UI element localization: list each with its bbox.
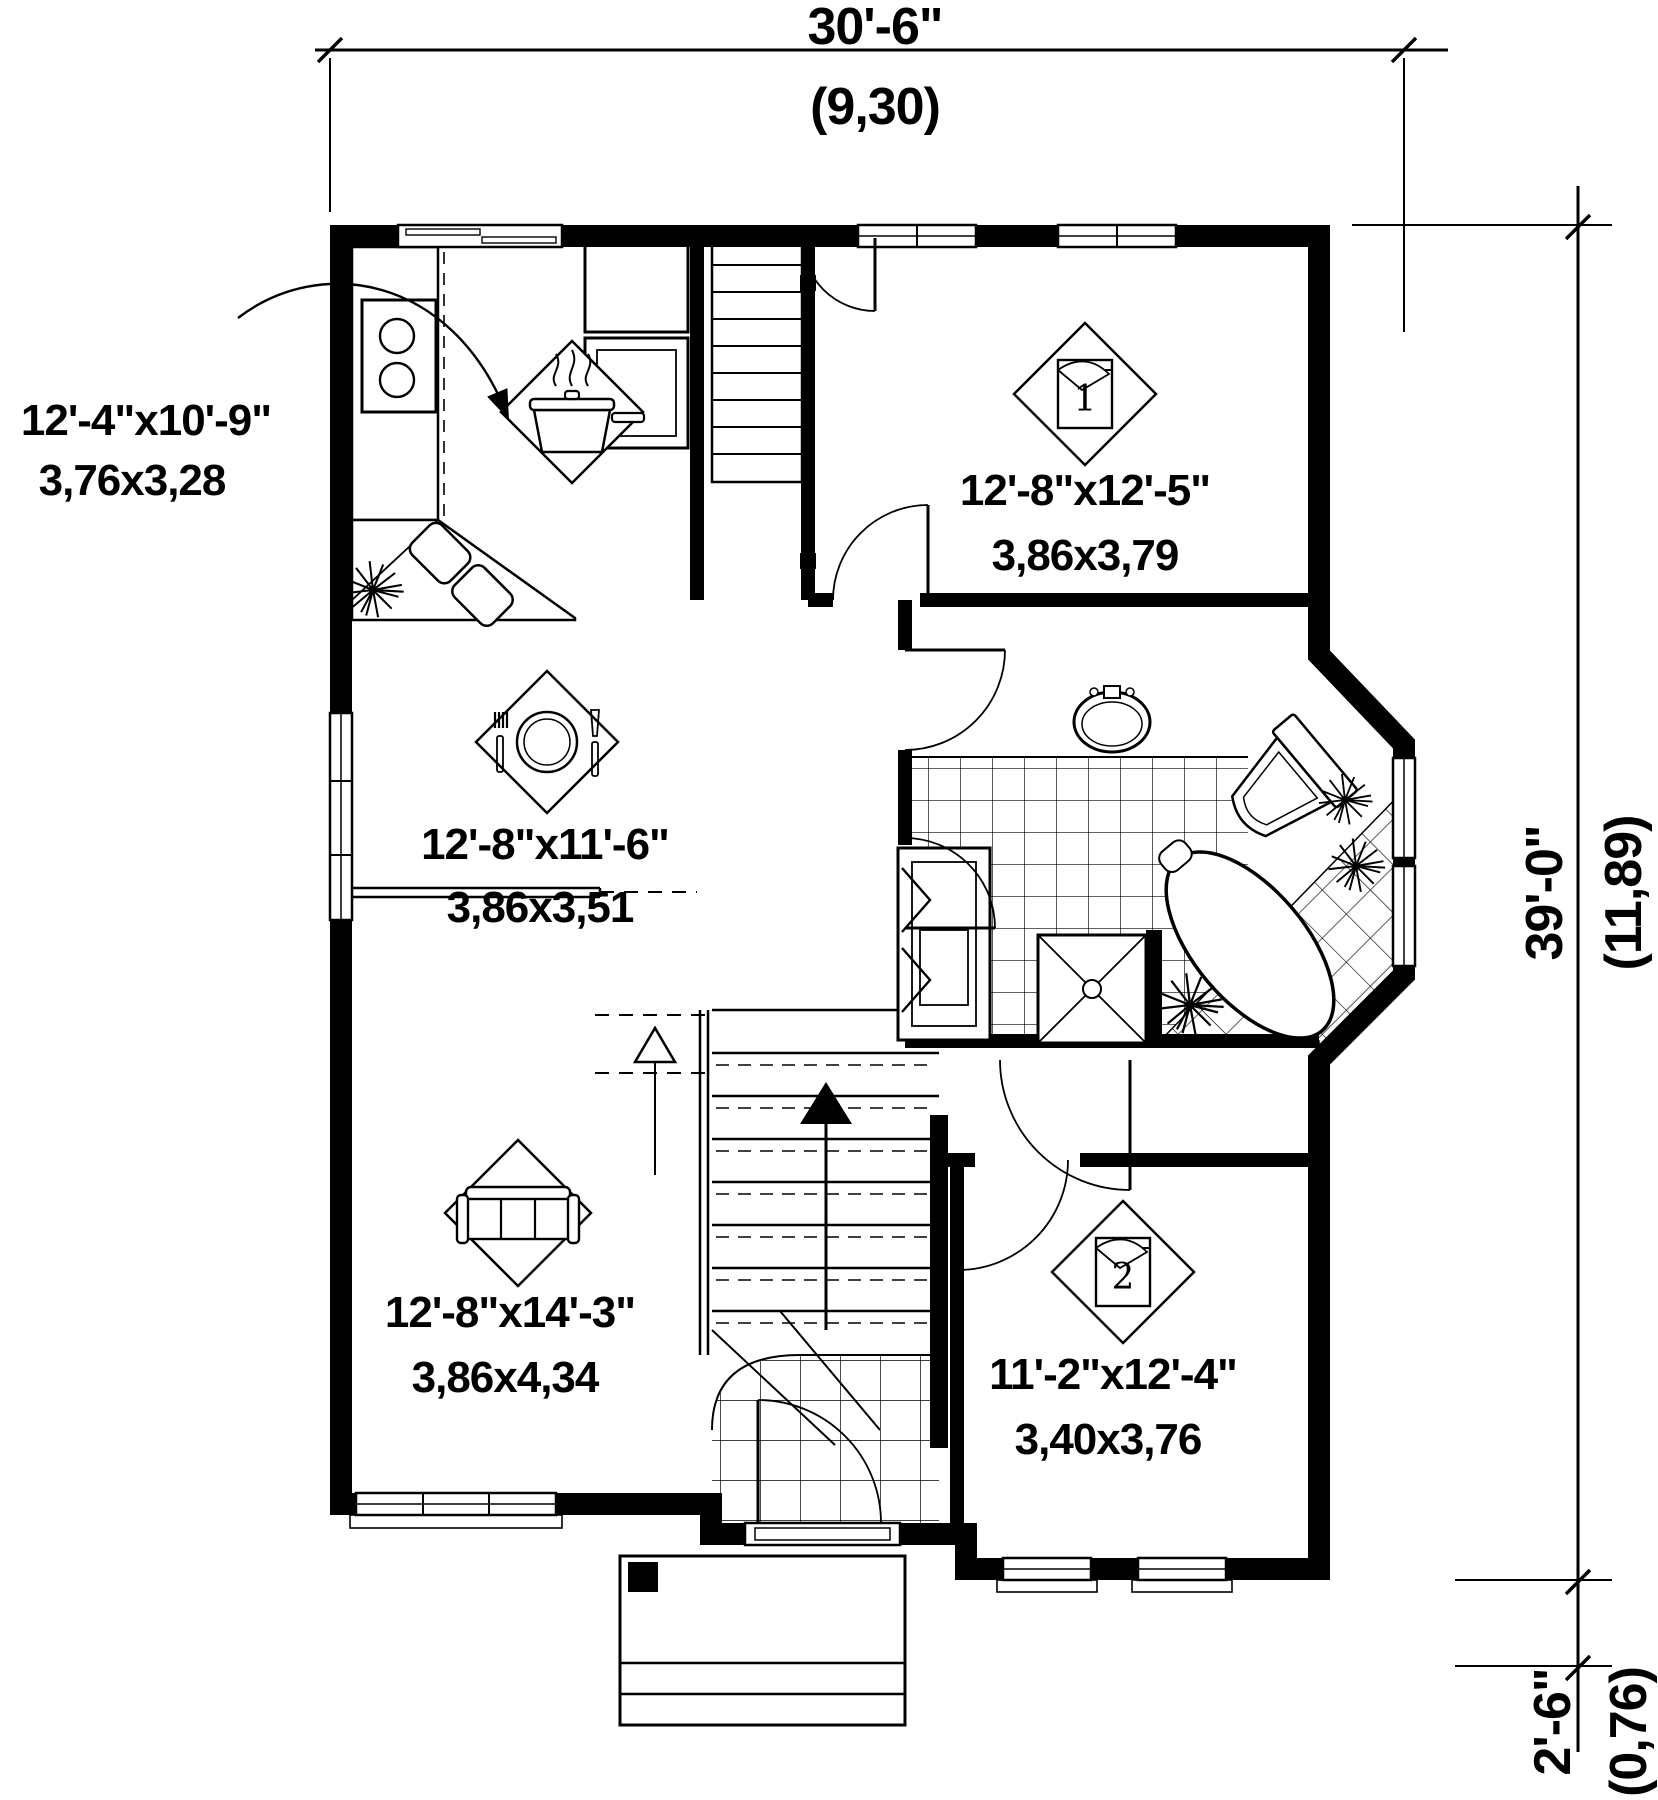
basement-stairs (712, 238, 802, 482)
bedroom2-window-a (997, 1558, 1097, 1592)
dimension-bottom-right-imperial: 2'-6" (1527, 1668, 1579, 1775)
kitchen-window (398, 225, 562, 247)
dining-window (330, 713, 352, 920)
floor-plan-canvas: 30'-6" (9,30) 39'-0" (11,89) 2'-6" (0,76… (0, 0, 1658, 1800)
bedroom2-number: 2 (1112, 1260, 1135, 1296)
bedroom1-window-b (1058, 225, 1176, 247)
bathroom-sink (1074, 686, 1150, 752)
bedroom2-door (958, 1160, 1068, 1270)
dining-label-imperial: 12'-8"x11'-6" (421, 823, 669, 867)
kitchen-label-metric: 3,76x3,28 (39, 459, 226, 503)
kitchen-label-imperial: 12'-4"x10'-9" (21, 399, 271, 443)
bedroom1-number: 1 (1074, 382, 1097, 418)
hall-closet (898, 848, 990, 1040)
dimension-top-imperial: 30'-6" (807, 1, 942, 53)
foyer-floor-tiles (712, 1355, 939, 1523)
bay-window-a (1393, 758, 1415, 858)
bedroom2-window-b (1132, 1558, 1232, 1592)
stove (362, 300, 436, 412)
dimension-top-metric: (9,30) (810, 81, 940, 133)
dining-icon (476, 671, 618, 813)
bedroom2-label-imperial: 11'-2"x12'-4" (989, 1353, 1237, 1397)
porch (620, 1556, 905, 1725)
porch-steps (620, 1663, 905, 1694)
dining-label-metric: 3,86x3,51 (447, 886, 634, 930)
living-label-imperial: 12'-8"x14'-3" (385, 1291, 635, 1335)
bedroom2-label-metric: 3,40x3,76 (1015, 1418, 1202, 1462)
bay-window-b (1393, 866, 1415, 966)
entry-up-arrow (635, 1028, 675, 1175)
dimension-right-metric: (11,89) (1598, 816, 1650, 971)
bedroom1-label-metric: 3,86x3,79 (992, 534, 1179, 578)
shower (1038, 935, 1146, 1043)
sofa-glyph (457, 1187, 579, 1243)
dimension-bottom-right-metric: (0,76) (1603, 1667, 1655, 1797)
bedroom1-door (833, 505, 928, 600)
sofa-icon (445, 1140, 591, 1286)
front-door-sill (745, 1523, 900, 1545)
bathroom-door (905, 650, 1005, 750)
living-label-metric: 3,86x4,34 (412, 1356, 599, 1400)
stair-direction-arrow (800, 1082, 852, 1330)
living-window (350, 1493, 562, 1528)
hall-door (1000, 1060, 1130, 1190)
bedroom1-label-imperial: 12'-8"x12'-5" (960, 469, 1210, 513)
dimension-right-imperial: 39'-0" (1519, 825, 1571, 960)
floor-plan-drawing (0, 0, 1658, 1800)
porch-post (628, 1562, 658, 1592)
